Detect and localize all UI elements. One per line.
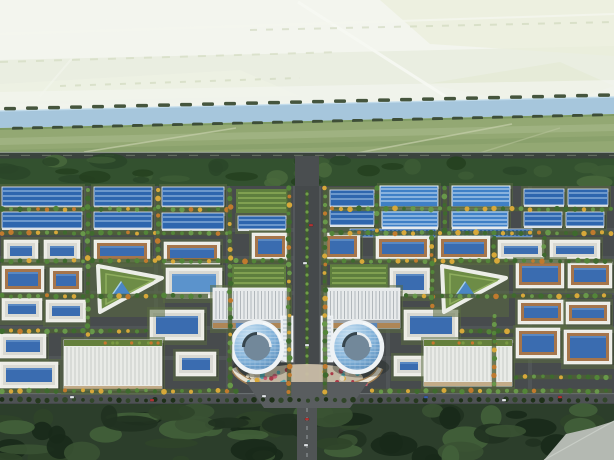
central-boulevard (294, 156, 320, 396)
masterplan-rendering (0, 0, 614, 460)
rendering-canvas (0, 0, 614, 460)
